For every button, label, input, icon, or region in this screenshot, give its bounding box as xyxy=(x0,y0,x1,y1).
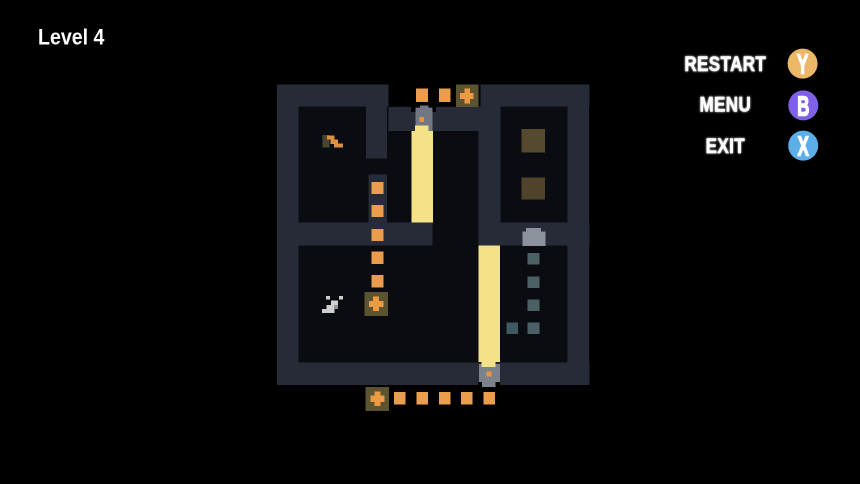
svg-text:MENU: MENU xyxy=(699,94,751,117)
svg-text:B: B xyxy=(797,90,809,122)
svg-text:Y: Y xyxy=(797,48,809,80)
svg-text:Level 4: Level 4 xyxy=(38,26,105,50)
svg-text:RESTART: RESTART xyxy=(684,54,766,77)
svg-text:X: X xyxy=(798,130,810,162)
svg-text:EXIT: EXIT xyxy=(706,135,745,158)
